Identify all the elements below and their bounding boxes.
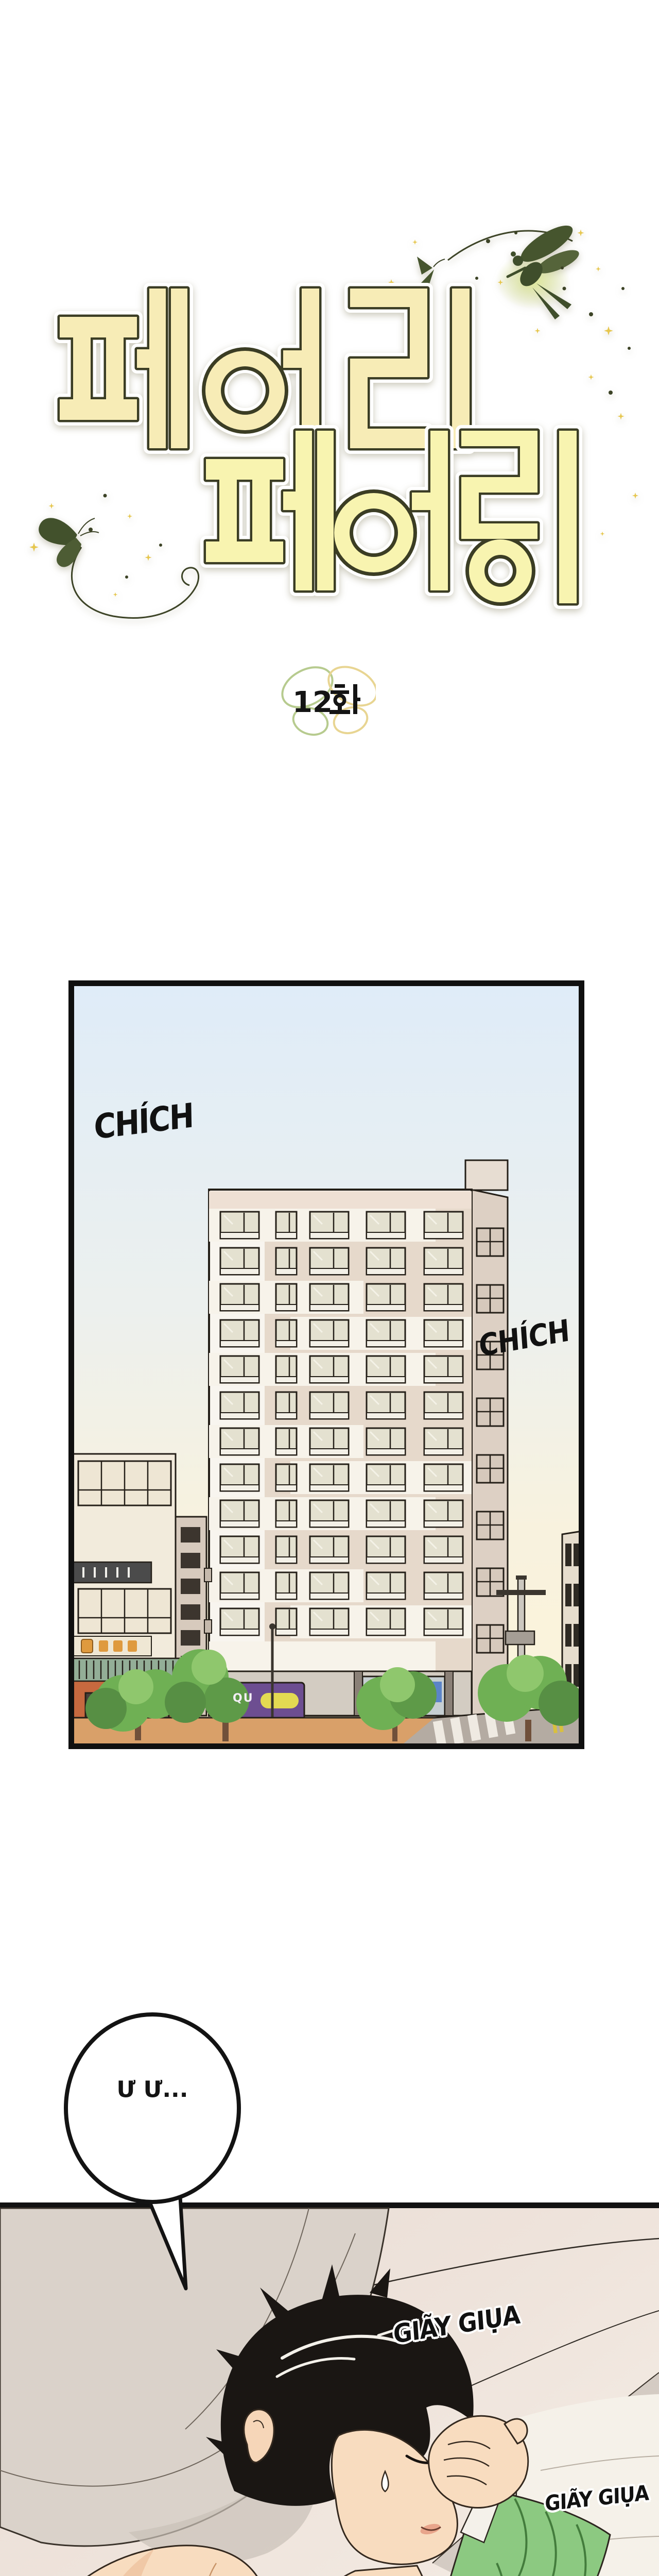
title-block: 페어리 페어링 bbox=[0, 216, 659, 639]
bubble-text: Ư Ư... bbox=[91, 2076, 214, 2103]
ac-unit bbox=[204, 1620, 212, 1633]
butterfly-icon bbox=[39, 518, 99, 567]
gold-sparkles bbox=[29, 503, 151, 597]
title-art bbox=[0, 216, 659, 639]
title-line2-art bbox=[206, 431, 577, 603]
episode-badge: 12화 12 bbox=[278, 659, 376, 747]
rooftop-box bbox=[465, 1160, 508, 1190]
city-scene bbox=[74, 986, 579, 1743]
pharmacy-sign bbox=[74, 1636, 151, 1656]
episode-badge-art: 12 bbox=[278, 659, 376, 747]
speech-bubble-art bbox=[61, 2010, 256, 2302]
dental-sign bbox=[74, 1562, 151, 1583]
qu-sign-text: QU bbox=[233, 1692, 254, 1705]
ac-unit bbox=[204, 1568, 212, 1582]
dark-dots bbox=[89, 494, 162, 579]
panel-city: 옴 치과 원약국 bbox=[68, 980, 584, 1749]
apartment-building bbox=[209, 1160, 508, 1720]
speech-bubble: Ư Ư... bbox=[61, 2010, 256, 2302]
butterfly-swirl-decoration bbox=[29, 494, 198, 618]
episode-number: 12 bbox=[292, 686, 333, 719]
butterfly-icon bbox=[417, 257, 445, 285]
title-line1-art bbox=[60, 289, 470, 448]
bubble-body bbox=[66, 2014, 239, 2202]
swirl-line bbox=[72, 547, 198, 618]
page-root: 페어리 페어링 bbox=[0, 0, 659, 2576]
